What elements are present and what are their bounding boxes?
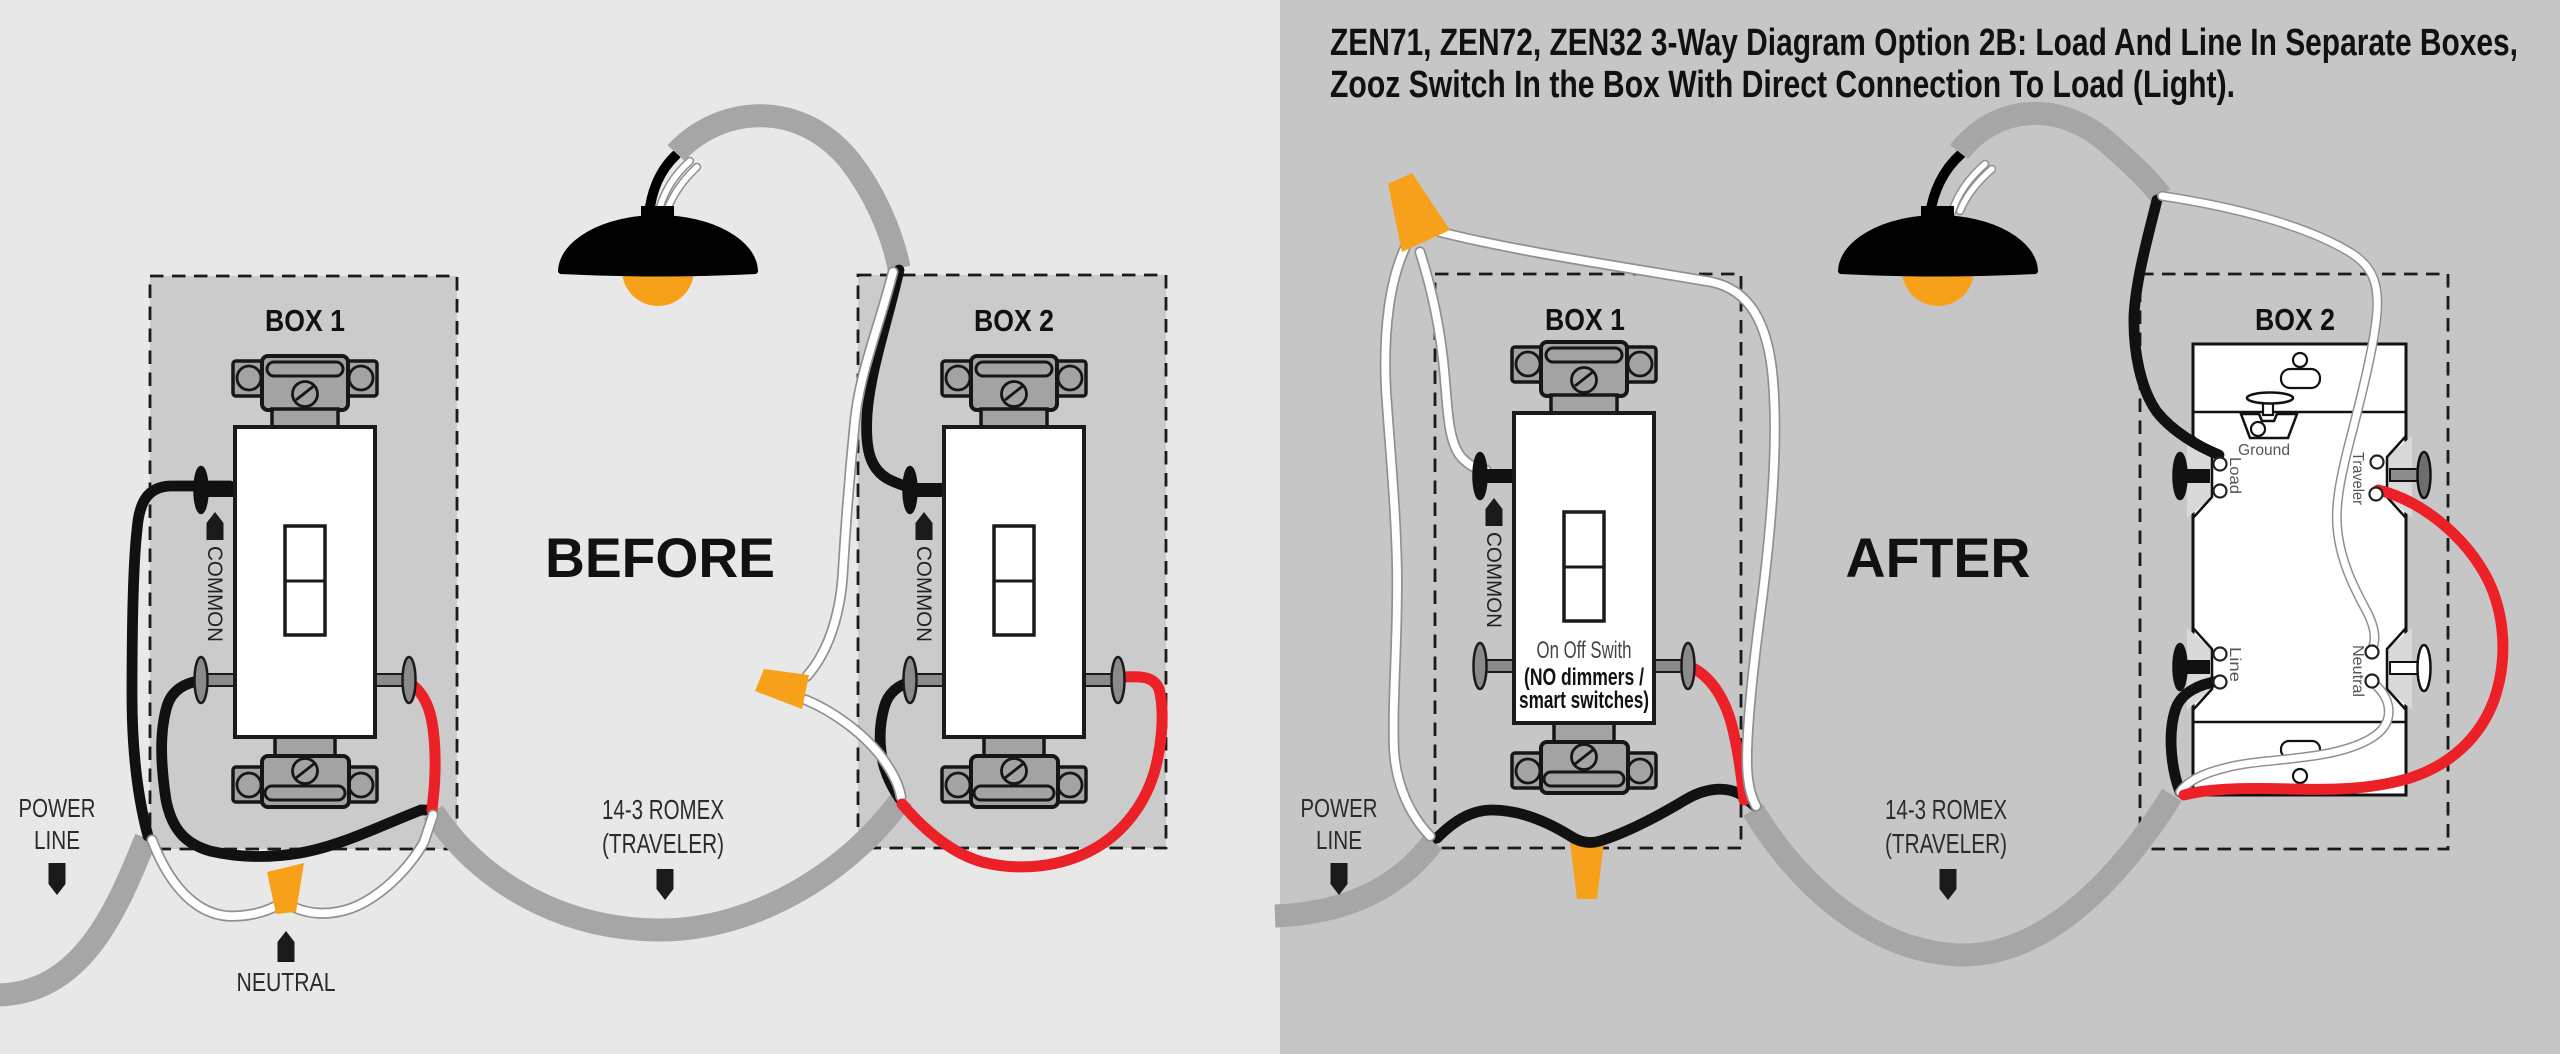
svg-text:Ground: Ground [2238,442,2290,459]
svg-text:POWER: POWER [1301,793,1378,823]
svg-text:BOX 1: BOX 1 [265,303,345,338]
svg-text:COMMON: COMMON [1482,532,1505,628]
svg-text:(TRAVELER): (TRAVELER) [602,828,724,859]
svg-text:BEFORE: BEFORE [545,526,775,589]
svg-text:POWER: POWER [19,793,96,823]
svg-text:Neutral: Neutral [2349,645,2366,697]
svg-text:On Off Swith: On Off Swith [1537,637,1632,664]
svg-text:Traveler: Traveler [2349,452,2366,506]
svg-text:14-3 ROMEX: 14-3 ROMEX [602,794,724,825]
svg-text:COMMON: COMMON [912,546,935,642]
svg-text:Zooz Switch In the Box With Di: Zooz Switch In the Box With Direct Conne… [1330,64,2235,106]
svg-text:BOX 1: BOX 1 [1545,302,1625,337]
svg-text:Load: Load [2226,457,2243,494]
svg-text:NEUTRAL: NEUTRAL [237,967,336,997]
svg-text:14-3 ROMEX: 14-3 ROMEX [1885,794,2007,825]
svg-text:Line: Line [2226,647,2243,682]
svg-text:COMMON: COMMON [203,546,226,642]
svg-text:AFTER: AFTER [1846,526,2031,589]
svg-text:LINE: LINE [1316,825,1362,855]
svg-text:BOX 2: BOX 2 [2255,302,2335,337]
svg-text:(TRAVELER): (TRAVELER) [1885,828,2007,859]
svg-text:smart switches): smart switches) [1519,687,1649,714]
svg-text:ZEN71, ZEN72, ZEN32 3-Way Diag: ZEN71, ZEN72, ZEN32 3-Way Diagram Option… [1330,22,2518,64]
svg-text:BOX 2: BOX 2 [974,303,1054,338]
svg-text:LINE: LINE [34,825,80,855]
